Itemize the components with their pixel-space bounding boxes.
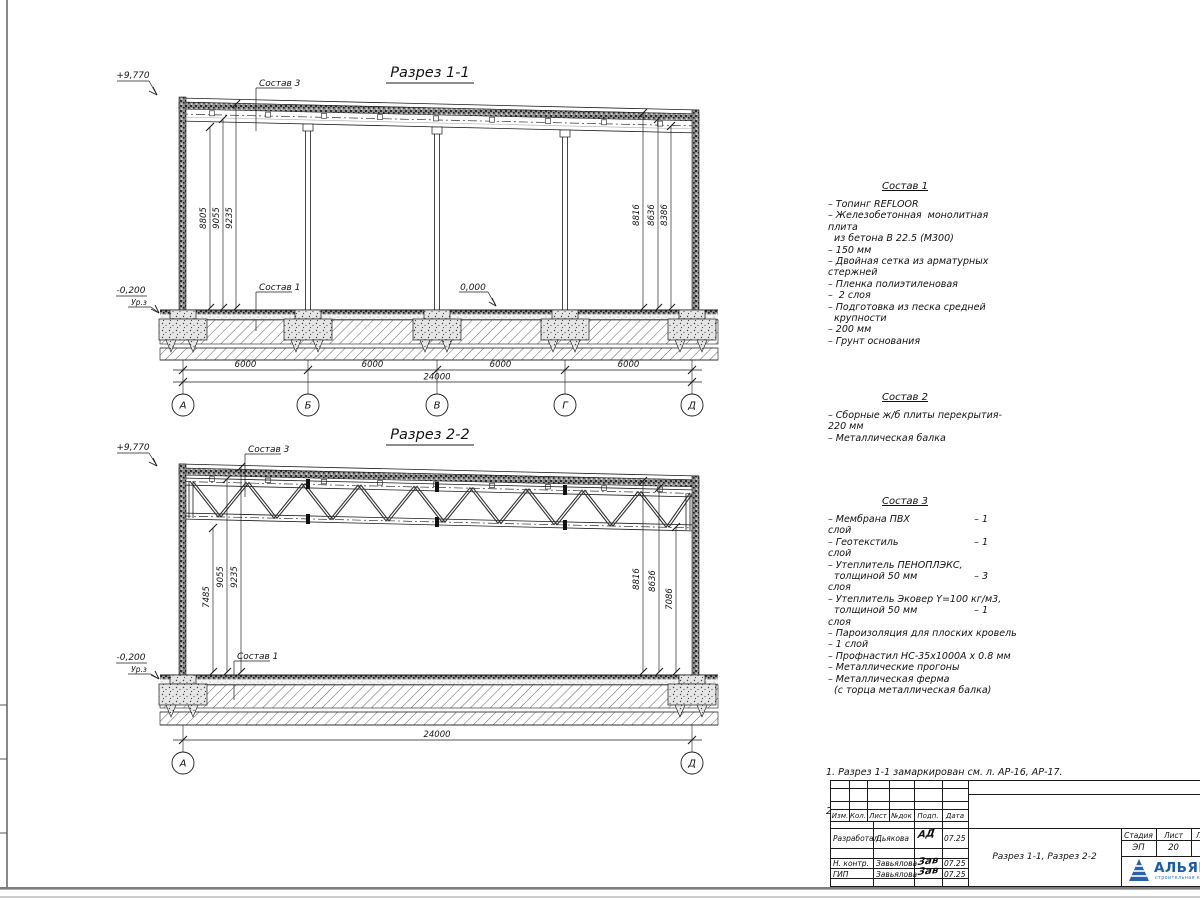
row-role: Разработал xyxy=(833,834,878,843)
axis-bubbles-2: А Д xyxy=(172,752,703,774)
sheets-label: Листов xyxy=(1191,831,1200,840)
stage-value: ЭП xyxy=(1121,843,1156,853)
elevation-mark-top-2: +9,770 xyxy=(116,443,157,466)
row-name: Дьякова xyxy=(876,834,909,843)
layer-line: стержней xyxy=(828,267,988,278)
layer-line: – Утеплитель ПЕНОПЛЭКС, xyxy=(828,560,988,571)
vert-dims-right-2: 8816 8636 7086 xyxy=(632,477,680,676)
alliance-logo-text: АЛЬЯНС xyxy=(1154,860,1200,876)
label-sostav3: Состав 3 xyxy=(248,445,290,455)
sostav-2-title: Состав 2 xyxy=(828,392,982,403)
layer-line: – Утеплитель Эковер Y=100 кг/м3, xyxy=(828,594,988,605)
elevation-ground-2: -0,200 Ур.з xyxy=(116,653,159,679)
layer-line: – Железобетонная монолитная xyxy=(828,210,988,221)
layer-line: – Сборные ж/б плиты перекрытия- xyxy=(828,410,988,421)
layer-line: – Двойная сетка из арматурных xyxy=(828,256,988,267)
layer-line: слоя xyxy=(828,617,988,628)
dim-8816: 8816 xyxy=(632,204,642,226)
layer-line: – 2 слоя xyxy=(828,290,988,301)
layer-line: – 150 мм xyxy=(828,245,988,256)
signature: АД xyxy=(917,828,936,841)
dim-8805: 8805 xyxy=(199,207,209,229)
col-izm: Изм. xyxy=(831,812,849,820)
layer-line: – 200 мм xyxy=(828,324,988,335)
dim-9055: 9055 xyxy=(216,566,226,588)
layer-line: плита xyxy=(828,222,988,233)
sostav-1-title: Состав 1 xyxy=(828,181,982,192)
label-sostav1: Состав 1 xyxy=(259,283,300,293)
wall-left-1 xyxy=(179,97,186,310)
sostav-2-block: Состав 2 – Сборные ж/б плиты перекрытия-… xyxy=(828,392,1028,444)
dim-7485: 7485 xyxy=(202,586,212,608)
sheet-label: Лист xyxy=(1156,831,1191,840)
bay-dim: 6000 xyxy=(362,360,384,370)
layer-line: – 1 слой xyxy=(828,639,988,650)
axis-d: Д xyxy=(687,401,696,412)
layer-line: – Металлическая балка xyxy=(828,433,988,444)
layer-line: – Топинг REFLOOR xyxy=(828,199,988,210)
elevation-value: -0,200 xyxy=(116,653,145,663)
layer-line: – Профнастил НС-35х1000А х 0.8 мм xyxy=(828,651,988,662)
layer-line: из бетона В 22.5 (М300) xyxy=(828,233,988,244)
sheets-value: 2 xyxy=(1191,843,1200,853)
layer-line: крупности xyxy=(828,313,988,324)
axis-bubbles-1: А Б В Г Д xyxy=(172,394,703,416)
sostav-1-block: Состав 1 – Топинг REFLOOR – Железобетонн… xyxy=(828,181,1028,347)
elevation-value: +9,770 xyxy=(116,443,150,453)
row-role: ГИП xyxy=(833,870,848,879)
row-name: Завьялова xyxy=(876,859,917,868)
drawing-sheet: Разрез 1-1 +9,770 xyxy=(0,0,1200,900)
alliance-logo-tagline: строительная компания xyxy=(1155,876,1200,881)
section-2-2-title: Разрез 2-2 xyxy=(390,427,469,443)
layer-line: слой xyxy=(828,548,988,559)
ground-level-label: Ур.з xyxy=(131,298,147,307)
layer-line: 220 мм xyxy=(828,421,988,432)
note-line-1: 1. Разрез 1-1 замаркирован см. л. АР-16,… xyxy=(826,766,1063,779)
sostav-3-title: Состав 3 xyxy=(828,496,982,507)
col-ndok: №док xyxy=(889,812,914,820)
elevation-value: -0,200 xyxy=(116,286,145,296)
vert-dims-right-1: 8816 8636 8386 xyxy=(632,109,675,312)
elevation-value: +9,770 xyxy=(116,71,150,81)
section-2-2: Разрез 2-2 +9,770 xyxy=(116,427,718,774)
doc-title: Разрез 1-1, Разрез 2-2 xyxy=(970,852,1119,862)
alliance-logo-icon xyxy=(1128,858,1150,886)
layer-line: – Мембрана ПВХ– 1 xyxy=(828,514,988,525)
layer-line: – Пленка полиэтиленовая xyxy=(828,279,988,290)
col-podp: Подп. xyxy=(914,812,942,820)
layer-line: – Пароизоляция для плоских кровель xyxy=(828,628,988,639)
title-block: Изм. Кол. Лист №док Подп. Дата Разработа… xyxy=(830,780,1200,887)
elevation-zero-1: 0,000 xyxy=(459,283,496,306)
axis-d: Д xyxy=(687,759,696,770)
dim-8386: 8386 xyxy=(660,204,670,226)
total-dim: 24000 xyxy=(423,373,450,383)
row-date: 07.25 xyxy=(944,834,965,843)
row-date: 07.25 xyxy=(944,859,965,868)
sostav-3-block: Состав 3 – Мембрана ПВХ– 1 слой – Геотек… xyxy=(828,496,1028,697)
dim-9235: 9235 xyxy=(225,207,235,229)
columns-1 xyxy=(303,124,570,310)
bay-dim: 6000 xyxy=(618,360,640,370)
dim-lines-2: 24000 xyxy=(173,725,702,752)
label-sostav1: Состав 1 xyxy=(237,652,278,662)
ground-level-label: Ур.з xyxy=(131,665,147,674)
elevation-mark-top-1: +9,770 xyxy=(116,71,157,95)
axis-a: А xyxy=(179,401,187,412)
row-date: 07.25 xyxy=(944,870,965,879)
layer-line: слоя xyxy=(828,582,988,593)
dim-lines-1: 6000 6000 6000 6000 24000 xyxy=(173,360,702,394)
axis-a: А xyxy=(179,759,187,770)
layer-line: – Металлические прогоны xyxy=(828,662,988,673)
dim-8636: 8636 xyxy=(647,204,657,226)
dim-9235: 9235 xyxy=(230,566,240,588)
wall-left-2 xyxy=(179,464,186,675)
wall-right-1 xyxy=(692,110,699,310)
label-sostav3: Состав 3 xyxy=(259,79,301,89)
bay-dim: 6000 xyxy=(235,360,257,370)
stage-label: Стадия xyxy=(1121,831,1156,840)
layer-line: – Металлическая ферма xyxy=(828,674,988,685)
col-list: Лист xyxy=(867,812,889,820)
vert-dims-left-1: 8805 9055 9235 xyxy=(199,100,240,312)
total-dim: 24000 xyxy=(423,730,450,740)
layer-line: – Грунт основания xyxy=(828,336,988,347)
steel-truss xyxy=(182,478,697,531)
dim-7086: 7086 xyxy=(665,588,675,610)
layer-line: толщиной 50 мм– 1 xyxy=(828,605,988,616)
dim-8636: 8636 xyxy=(648,570,658,592)
layer-line: – Подготовка из песка средней xyxy=(828,302,988,313)
bay-dim: 6000 xyxy=(490,360,512,370)
layer-line: – Геотекстиль– 1 xyxy=(828,537,988,548)
axis-v: В xyxy=(434,401,441,412)
sheet-value: 20 xyxy=(1156,843,1191,853)
section-1-1: Разрез 1-1 +9,770 xyxy=(116,65,718,416)
axis-b: Б xyxy=(305,401,312,412)
layer-line: (с торца металлическая балка) xyxy=(828,685,988,696)
col-data: Дата xyxy=(942,812,968,820)
elevation-ground-1: -0,200 Ур.з xyxy=(116,286,159,313)
dim-9055: 9055 xyxy=(212,207,222,229)
floor-ground-2 xyxy=(160,675,718,725)
signature: Зав xyxy=(917,865,939,878)
section-1-1-title: Разрез 1-1 xyxy=(390,65,469,81)
layer-line: толщиной 50 мм– 3 xyxy=(828,571,988,582)
row-role: Н. контр. xyxy=(833,859,869,868)
elevation-value: 0,000 xyxy=(460,283,486,293)
wall-right-2 xyxy=(692,476,699,675)
row-name: Завьялова xyxy=(876,870,917,879)
dim-8816: 8816 xyxy=(632,568,642,590)
layer-line: слой xyxy=(828,525,988,536)
col-kol: Кол. xyxy=(849,812,867,820)
